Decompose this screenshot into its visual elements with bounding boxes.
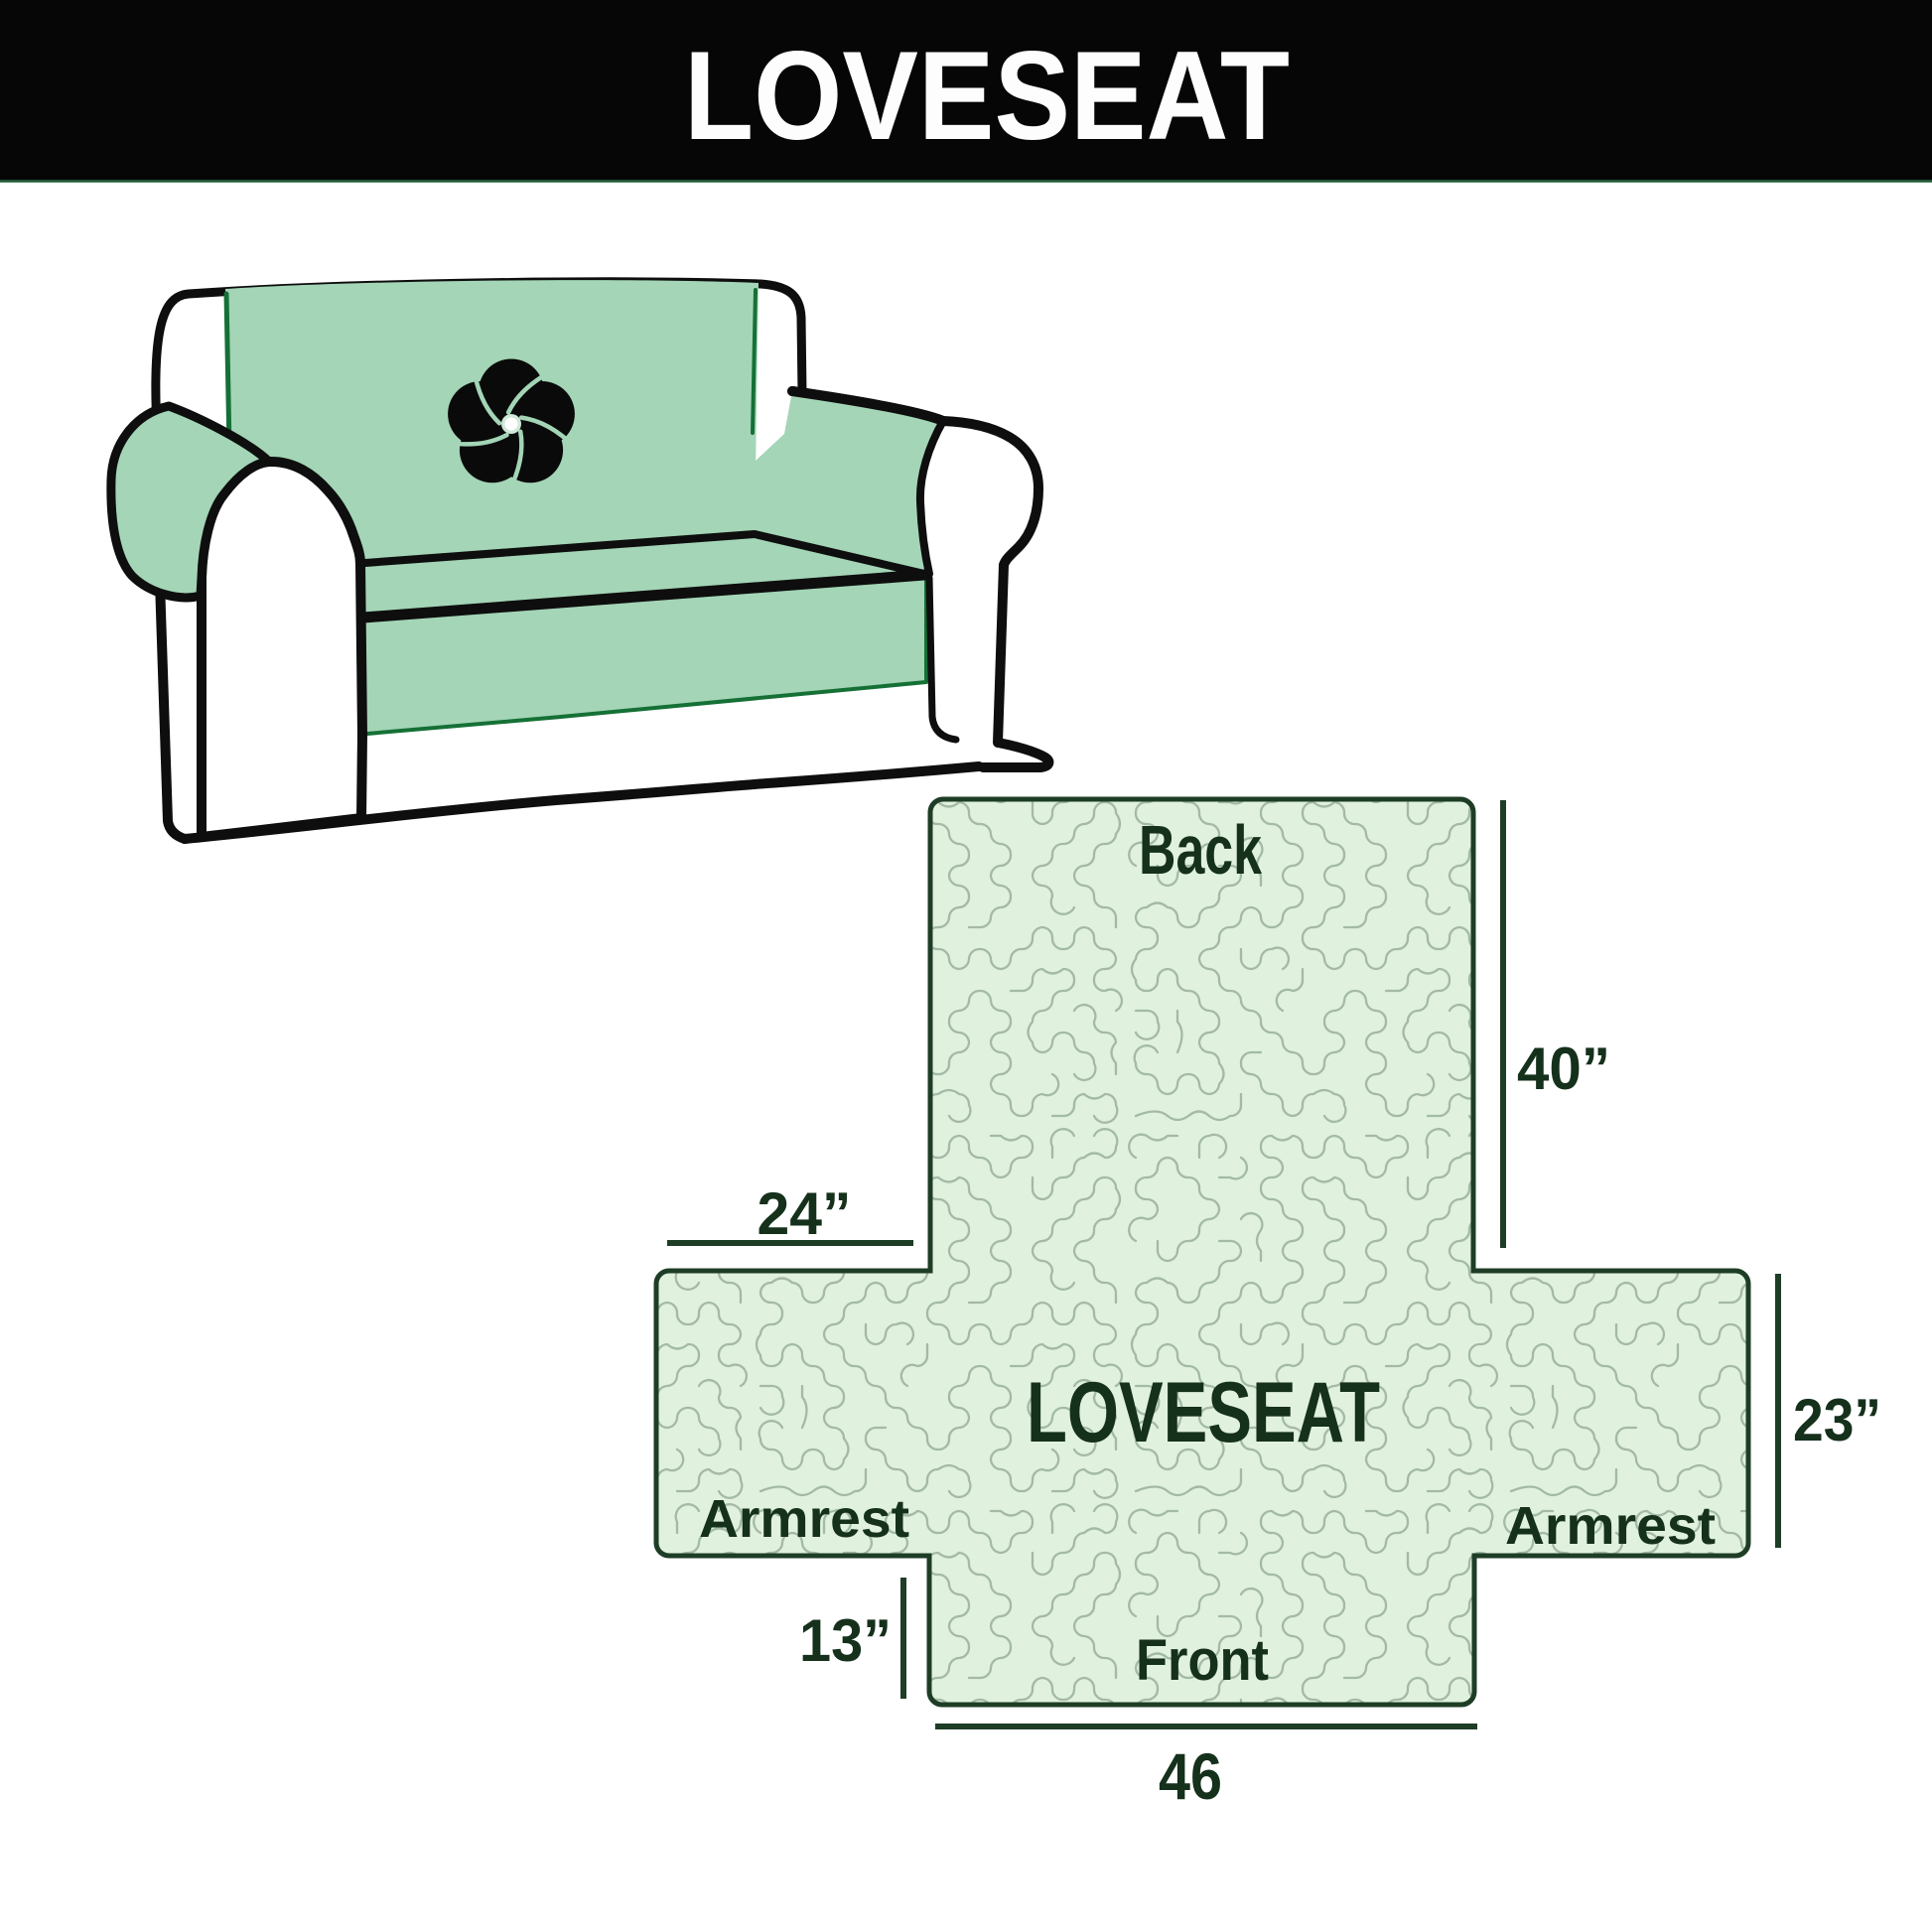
svg-text:40”: 40” bbox=[1517, 1035, 1610, 1102]
svg-text:Armrest: Armrest bbox=[1505, 1496, 1716, 1556]
svg-text:46: 46 bbox=[1159, 1739, 1222, 1813]
svg-text:24”: 24” bbox=[758, 1180, 852, 1247]
svg-text:Armrest: Armrest bbox=[699, 1489, 909, 1549]
svg-text:LOVESEAT: LOVESEAT bbox=[684, 25, 1290, 166]
svg-text:23”: 23” bbox=[1793, 1387, 1881, 1453]
svg-text:LOVESEAT: LOVESEAT bbox=[1027, 1365, 1380, 1460]
svg-text:13”: 13” bbox=[799, 1607, 892, 1674]
svg-text:Front: Front bbox=[1136, 1628, 1269, 1693]
svg-text:Back: Back bbox=[1139, 811, 1262, 889]
